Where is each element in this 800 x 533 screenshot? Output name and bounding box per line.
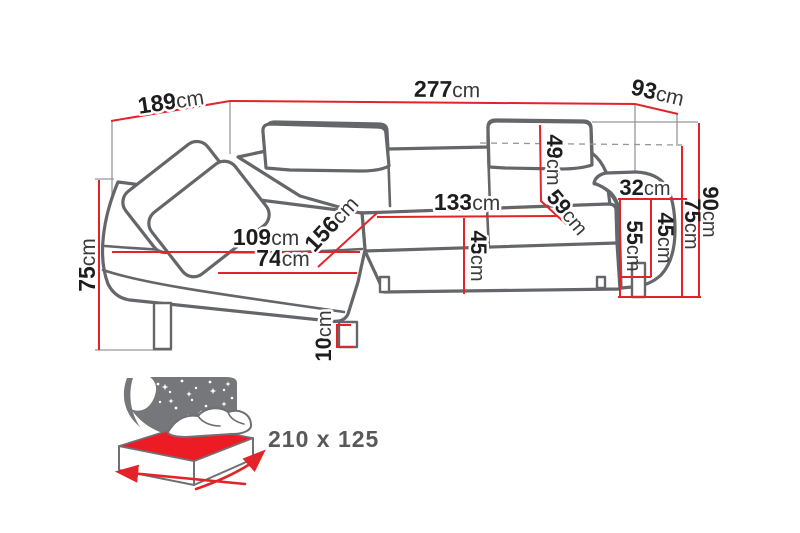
leg-inner-right bbox=[597, 277, 605, 288]
dim-label-seat-width: 133cm bbox=[434, 189, 500, 215]
dim-line-seat-width bbox=[377, 216, 558, 217]
dim-label-armrest-width: 32cm bbox=[619, 175, 670, 200]
dim-label-chaise-seat-width: 74cm bbox=[256, 245, 310, 271]
sofa-drawing bbox=[103, 120, 682, 349]
dim-label-back-width: 189cm bbox=[136, 83, 205, 119]
dim-label-leg-height: 10cm bbox=[311, 310, 336, 361]
sofa-dimension-diagram: 189cm 277cm 93cm 75cm 90cm 75cm 49cm 59c… bbox=[0, 0, 800, 533]
base-front bbox=[365, 243, 620, 292]
leg-front-left bbox=[154, 303, 171, 349]
sleeping-function-icon: 210 x 125 bbox=[119, 377, 379, 489]
bed-icon bbox=[119, 408, 262, 489]
dim-label-headrest-height: 49cm bbox=[542, 134, 567, 185]
dim-label-armrest-height: 55cm bbox=[622, 220, 647, 271]
headrest-left bbox=[263, 124, 389, 171]
sleeping-area-label: 210 x 125 bbox=[268, 426, 379, 452]
dim-label-backrest-height: 75cm bbox=[680, 198, 705, 249]
dim-label-seat-height: 45cm bbox=[466, 230, 491, 281]
dim-label-height-left: 75cm bbox=[74, 238, 100, 292]
dim-label-total-width: 277cm bbox=[414, 76, 481, 103]
dim-label-armrest-inner-height: 45cm bbox=[653, 212, 678, 263]
leg-middle bbox=[380, 277, 389, 292]
